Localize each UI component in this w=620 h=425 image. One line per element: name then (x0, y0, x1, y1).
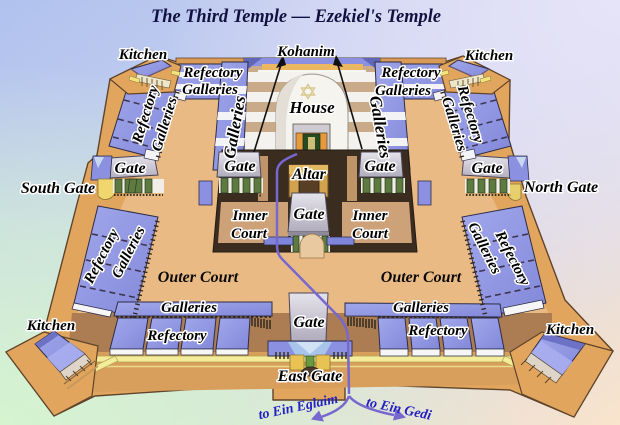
svg-text:Galleries: Galleries (161, 300, 217, 316)
svg-text:Altar: Altar (291, 166, 327, 183)
svg-text:Gate: Gate (114, 160, 145, 177)
svg-text:Gate: Gate (293, 206, 324, 223)
svg-text:Gate: Gate (224, 158, 255, 175)
svg-text:Kitchen: Kitchen (26, 318, 75, 334)
svg-text:Inner: Inner (351, 208, 387, 224)
svg-text:Refectory: Refectory (380, 65, 440, 81)
svg-text:Outer Court: Outer Court (158, 269, 239, 286)
svg-text:East Gate: East Gate (277, 368, 342, 385)
svg-text:Gate: Gate (471, 160, 502, 177)
svg-text:Court: Court (352, 226, 389, 242)
svg-text:Court: Court (231, 226, 268, 242)
svg-text:Kitchen: Kitchen (545, 322, 594, 338)
svg-text:The Third Temple — Ezekiel's T: The Third Temple — Ezekiel's Temple (151, 6, 442, 27)
svg-text:Refectory: Refectory (407, 323, 467, 339)
svg-text:House: House (288, 98, 335, 117)
svg-text:Inner: Inner (231, 208, 267, 224)
svg-text:Refectory: Refectory (182, 65, 242, 81)
svg-text:Kohanim: Kohanim (276, 44, 335, 60)
svg-text:Gate: Gate (364, 158, 395, 175)
svg-text:Kitchen: Kitchen (464, 48, 513, 64)
svg-text:Galleries: Galleries (393, 300, 449, 316)
svg-text:Gate: Gate (293, 314, 324, 331)
svg-text:Refectory: Refectory (146, 328, 206, 344)
svg-text:North Gate: North Gate (523, 179, 598, 196)
svg-text:South Gate: South Gate (21, 180, 95, 197)
svg-text:Outer Court: Outer Court (381, 269, 462, 286)
svg-text:Kitchen: Kitchen (118, 47, 167, 63)
